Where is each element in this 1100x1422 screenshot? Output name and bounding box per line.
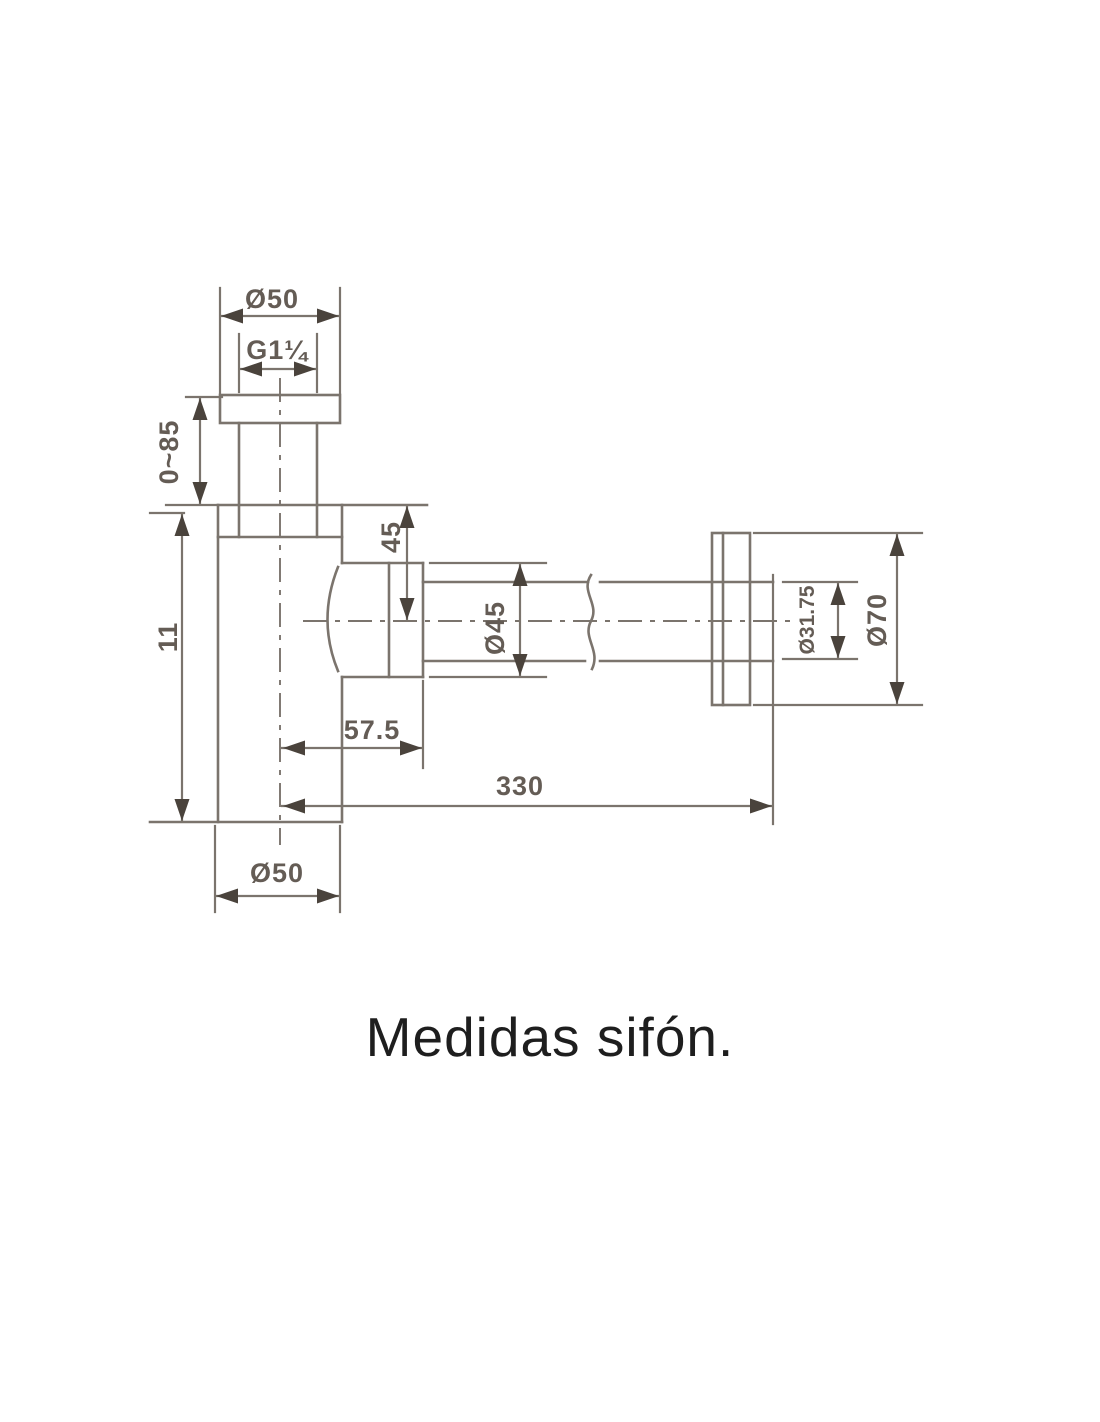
dim-label-body-diameter: Ø50: [250, 858, 304, 888]
caption: Medidas sifón.: [0, 1005, 1100, 1069]
dim-label-top-flange-diameter: Ø50: [245, 284, 299, 314]
siphon-technical-drawing: Ø50 G1¼ 0~85 11 45 Ø45 57.5 330 Ø50 Ø31.…: [0, 0, 1100, 1422]
trap-body-outline: [150, 395, 427, 822]
dim-label-center-to-socket-end: 57.5: [344, 715, 401, 745]
socket-body-arc: [328, 567, 339, 671]
page: Ø50 G1¼ 0~85 11 45 Ø45 57.5 330 Ø50 Ø31.…: [0, 0, 1100, 1422]
pipe-break-squiggle: [588, 575, 595, 669]
dim-label-inlet-thread: G1¼: [246, 335, 309, 365]
dim-label-pipe-diameter: Ø31.75: [796, 585, 819, 654]
wall-flange: [712, 533, 750, 705]
dim-label-wall-flange-diameter: Ø70: [862, 593, 892, 647]
dim-label-socket-nut-diameter: Ø45: [480, 601, 510, 655]
dim-label-body-top-to-pipe-center: 45: [376, 521, 406, 553]
wall-flange-outline: [712, 533, 750, 705]
arrowheads: [175, 309, 905, 904]
dim-label-adjustable-inlet-height: 0~85: [154, 420, 184, 485]
dim-label-center-to-wall-length: 330: [496, 771, 544, 801]
dim-label-body-height: 11: [153, 622, 183, 653]
outlet-pipe: [423, 575, 773, 669]
